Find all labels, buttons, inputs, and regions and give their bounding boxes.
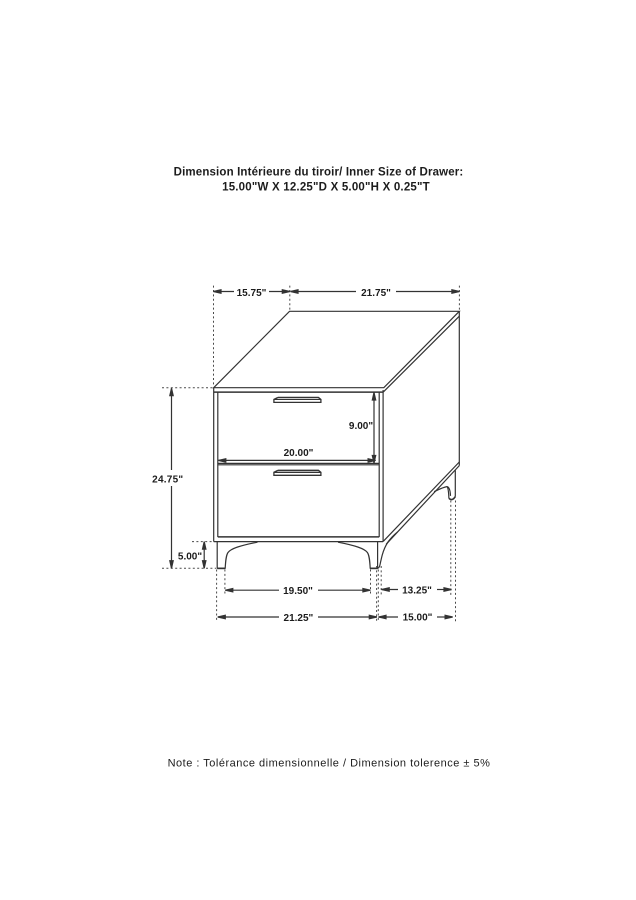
svg-text:Dimension Intérieure du tiroir: Dimension Intérieure du tiroir/ Inner Si… xyxy=(174,167,464,179)
svg-text:15.75": 15.75" xyxy=(237,288,267,299)
svg-text:13.25": 13.25" xyxy=(402,585,432,596)
svg-text:19.50": 19.50" xyxy=(283,586,313,597)
svg-text:Note : Tolérance dimensionnell: Note : Tolérance dimensionnelle / Dimens… xyxy=(168,758,491,770)
svg-text:5.00": 5.00" xyxy=(178,552,202,563)
svg-text:15.00"W X 12.25"D X 5.00"H X 0: 15.00"W X 12.25"D X 5.00"H X 0.25"T xyxy=(222,182,430,194)
svg-text:21.25": 21.25" xyxy=(284,613,314,624)
svg-text:21.75": 21.75" xyxy=(361,288,391,299)
svg-text:9.00": 9.00" xyxy=(349,421,373,432)
svg-text:24.75": 24.75" xyxy=(152,474,183,485)
svg-text:20.00": 20.00" xyxy=(284,448,314,459)
svg-text:15.00": 15.00" xyxy=(403,613,433,624)
